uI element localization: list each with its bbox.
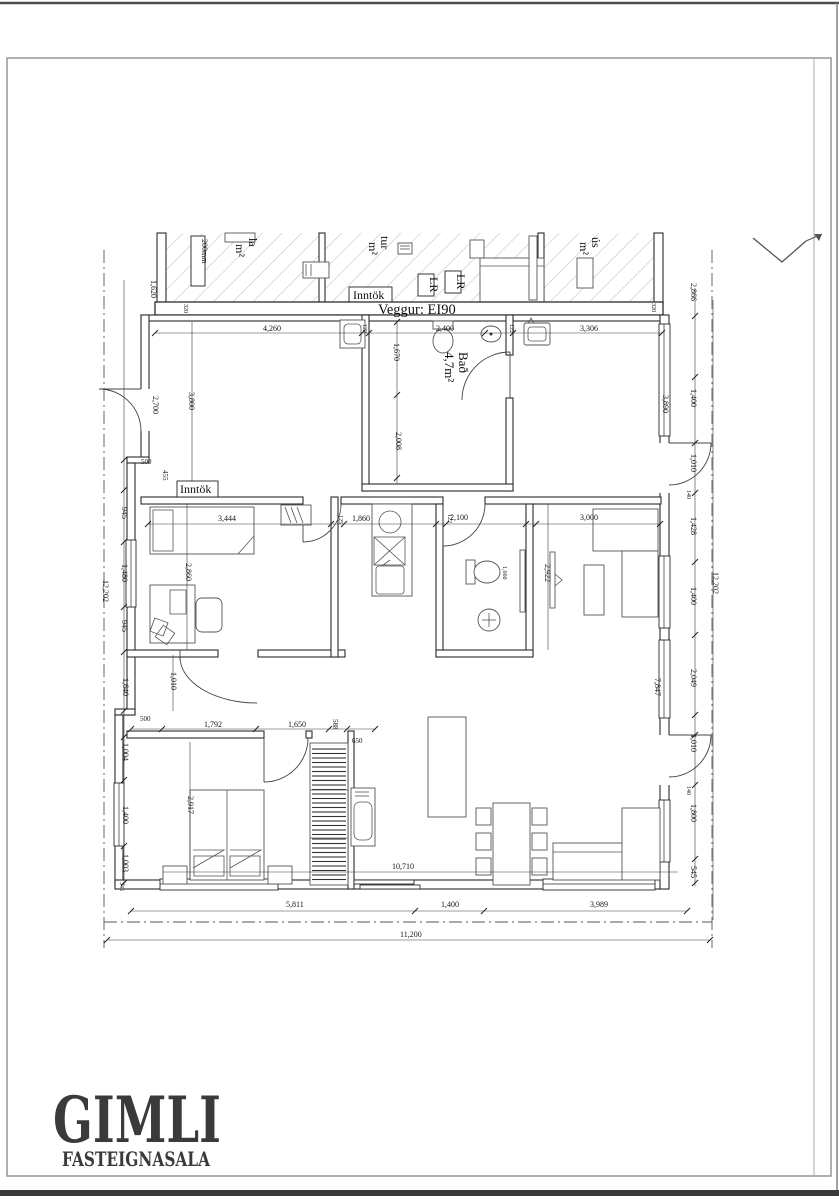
vestibule-door-arc bbox=[180, 657, 257, 703]
dim: 1,003 bbox=[121, 854, 130, 872]
dim: 1,400 bbox=[689, 389, 698, 407]
dim: 3,800 bbox=[187, 392, 196, 410]
kitchen-island bbox=[428, 717, 466, 817]
dim: 3,890 bbox=[661, 395, 670, 413]
dim: 1,400 bbox=[689, 587, 698, 605]
dim: 1,650 bbox=[288, 720, 306, 729]
inntok-left-label: Inntök bbox=[180, 482, 211, 496]
floor-plan-svg: 200mm la m² tur m² ús m² LR LR Inntök bbox=[0, 0, 839, 1200]
dim: 2,866 bbox=[689, 283, 698, 301]
window-bottom-2 bbox=[543, 879, 655, 890]
dim: 4,260 bbox=[263, 324, 281, 333]
dining-chair bbox=[532, 808, 547, 825]
dim: 3,000 bbox=[580, 513, 598, 522]
hall-wall bbox=[127, 650, 218, 657]
dim: 3,306 bbox=[580, 324, 598, 333]
nightstand-1 bbox=[163, 866, 187, 884]
dim: 650 bbox=[352, 737, 363, 745]
dim: 122 bbox=[446, 514, 452, 523]
adjacent-fixture bbox=[470, 240, 484, 258]
bath-room-area: 4,7m² bbox=[442, 352, 457, 382]
dim: 1,620 bbox=[149, 280, 158, 298]
adjacent-radiator bbox=[303, 262, 329, 278]
dim: 1,670 bbox=[392, 343, 401, 361]
sofa-top bbox=[593, 509, 658, 551]
dim: 1,004 bbox=[121, 743, 130, 761]
dim: 588 bbox=[331, 719, 339, 730]
adjacent-appliance bbox=[577, 258, 593, 288]
dim: 500 bbox=[141, 458, 152, 466]
dim: 2,917 bbox=[186, 796, 195, 814]
dim: 122 bbox=[361, 324, 367, 333]
dining-chair bbox=[532, 833, 547, 850]
single-bed bbox=[150, 507, 254, 554]
tv-bracket bbox=[555, 574, 562, 586]
dim: 545 bbox=[689, 866, 698, 878]
dim: 1,480 bbox=[120, 564, 129, 582]
sofa-top-chaise bbox=[622, 551, 658, 617]
dim: 1,010 bbox=[169, 672, 178, 690]
dim: 2,008 bbox=[394, 432, 403, 450]
shower-panel bbox=[520, 550, 525, 612]
wc-bottom-wall bbox=[436, 650, 533, 657]
dim: 945 bbox=[120, 507, 129, 519]
furniture bbox=[150, 318, 660, 885]
side-table bbox=[584, 565, 604, 615]
mm200-label: 200mm bbox=[200, 239, 209, 264]
inntok-top-label: Inntök bbox=[353, 288, 384, 302]
sofa-bottom bbox=[553, 843, 625, 880]
dim: 2,860 bbox=[184, 563, 193, 581]
wc-right-wall bbox=[526, 504, 533, 657]
dim: 12,202 bbox=[711, 572, 720, 594]
window-right-2 bbox=[659, 556, 670, 628]
window-right-1 bbox=[659, 324, 670, 436]
wc-door-arc bbox=[443, 504, 485, 546]
room-fragment-la-m2: m² bbox=[233, 244, 247, 257]
dim: 1,860 bbox=[352, 514, 370, 523]
dim: 140 bbox=[685, 786, 691, 795]
adjacent-vent bbox=[398, 243, 412, 254]
kitchen-counter bbox=[372, 504, 412, 596]
dim: 1,010 bbox=[689, 734, 698, 752]
dim: 3,989 bbox=[590, 900, 608, 909]
dim: 140 bbox=[685, 490, 691, 499]
dim: 1,428 bbox=[689, 517, 698, 535]
window-right-4 bbox=[659, 800, 670, 862]
dim: 1,660 bbox=[501, 566, 507, 580]
mid-wall bbox=[141, 497, 303, 504]
room-fragment-la: la bbox=[246, 238, 260, 247]
room-labels: Inntök Bað 4,7m² bbox=[177, 352, 471, 497]
nightstand-2 bbox=[268, 866, 292, 884]
dim: 455 bbox=[161, 470, 169, 481]
toilet-wc bbox=[474, 561, 500, 583]
dim: 945 bbox=[120, 620, 129, 632]
dining-chair bbox=[476, 808, 491, 825]
dim: 11,200 bbox=[400, 930, 422, 939]
ei90-wall-label: Veggur: EI90 bbox=[378, 302, 456, 318]
wc-left-wall bbox=[436, 504, 443, 657]
left-wall-upper bbox=[141, 315, 149, 462]
logo: GIMLI FASTEIGNASALA bbox=[53, 1083, 221, 1171]
entry-door-arc bbox=[99, 389, 141, 431]
lr2-label: LR bbox=[454, 274, 468, 289]
dim: 2,400 bbox=[436, 324, 454, 333]
dim: 2,049 bbox=[689, 669, 698, 687]
desk-chair bbox=[196, 598, 222, 632]
dim: 500 bbox=[140, 715, 151, 723]
direction-arrow bbox=[753, 234, 822, 262]
dim: 7,847 bbox=[653, 678, 662, 696]
dim: 320 bbox=[650, 303, 656, 312]
dim: 1,400 bbox=[121, 806, 130, 824]
room-fragment-tur-m2: m² bbox=[366, 242, 380, 255]
logo-subtitle: FASTEIGNASALA bbox=[62, 1147, 210, 1171]
dim: 345 bbox=[118, 882, 124, 891]
dim: 1,010 bbox=[689, 454, 698, 472]
dim: 3,444 bbox=[218, 514, 236, 523]
dim: 10,710 bbox=[392, 862, 414, 871]
dim: 1,792 bbox=[204, 720, 222, 729]
drawing-sheet: 200mm la m² tur m² ús m² LR LR Inntök bbox=[0, 0, 839, 1200]
dining-table bbox=[493, 803, 530, 885]
dim: 1,400 bbox=[441, 900, 459, 909]
bedroom-wall bbox=[127, 731, 264, 738]
dim: 125 bbox=[337, 515, 343, 524]
lr1-label: LR bbox=[427, 277, 441, 292]
adjacent-unit-band: 200mm la m² tur m² ús m² LR LR Inntök bbox=[157, 233, 663, 303]
bath-right-wall bbox=[506, 315, 513, 355]
sofa-bottom-chaise bbox=[622, 808, 660, 880]
sliding-door bbox=[354, 880, 414, 884]
bottom-bar bbox=[0, 1190, 839, 1196]
dim: 2,922 bbox=[543, 564, 552, 582]
dining-chair bbox=[532, 858, 547, 875]
room-fragment-us-m2: m² bbox=[577, 242, 591, 255]
dim: 122 bbox=[508, 324, 514, 333]
bath-bottom-wall bbox=[362, 484, 513, 491]
bedroom-door-arc bbox=[264, 738, 308, 782]
dim: 1,640 bbox=[121, 678, 130, 696]
bath-room-name: Bað bbox=[456, 352, 471, 373]
dim: 5,811 bbox=[286, 900, 304, 909]
dining-chair bbox=[476, 858, 491, 875]
dim: 320 bbox=[182, 304, 188, 313]
dining-chair bbox=[476, 833, 491, 850]
adjacent-cabinet bbox=[529, 236, 537, 300]
dim: 2,700 bbox=[151, 396, 160, 414]
dim: 1,800 bbox=[689, 804, 698, 822]
dim: 12,202 bbox=[101, 580, 110, 602]
